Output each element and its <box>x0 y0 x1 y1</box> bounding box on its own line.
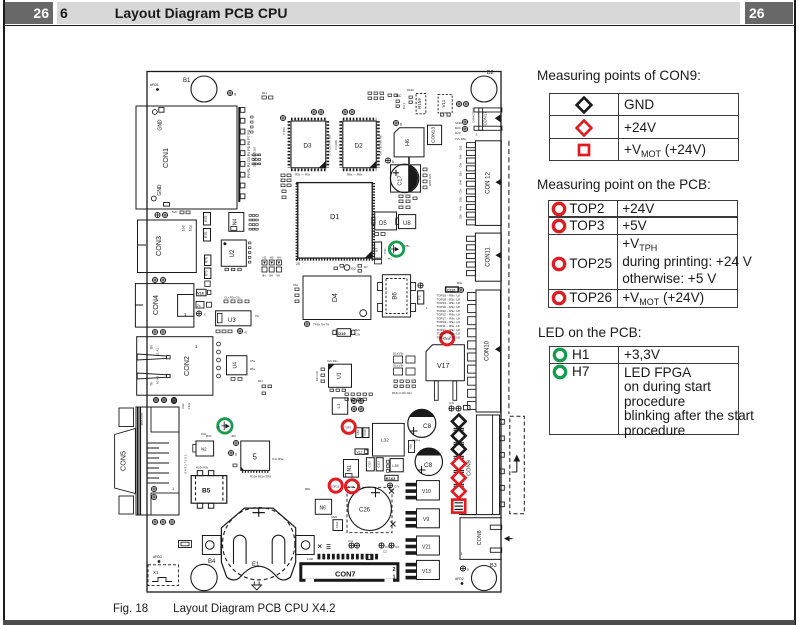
svg-text:D1x V3x: D1x V3x <box>393 352 404 356</box>
svg-text:TP5x Tst T9: TP5x Tst T9 <box>313 323 329 327</box>
svg-text:1: 1 <box>461 551 464 556</box>
svg-text:R10x R11x TP9: R10x R11x TP9 <box>250 475 271 479</box>
svg-text:C114: C114 <box>335 521 339 528</box>
svg-text:V17: V17 <box>437 363 450 370</box>
svg-text:CON7: CON7 <box>335 570 356 579</box>
svg-text:C17: C17 <box>398 175 404 185</box>
svg-text:9 4 8 3 7 2 6 1: 9 4 8 3 7 2 6 1 <box>184 454 188 474</box>
svg-text:R9x — R9x: R9x — R9x <box>295 173 311 177</box>
svg-text:D23: D23 <box>455 131 461 135</box>
svg-text:H5: H5 <box>270 256 274 260</box>
svg-text:1: 1 <box>172 486 175 491</box>
svg-text:9: 9 <box>234 92 237 97</box>
svg-text:H3: H3 <box>263 256 267 260</box>
svg-text:CON11: CON11 <box>486 247 492 267</box>
svg-text:D3x: D3x <box>459 171 463 176</box>
svg-text:CON2: CON2 <box>182 356 191 376</box>
svg-text:V7: V7 <box>375 248 379 252</box>
svg-text:V10: V10 <box>422 489 431 495</box>
svg-text:V12: V12 <box>357 450 363 454</box>
svg-text:CON17: CON17 <box>483 111 488 126</box>
svg-text:JP2: JP2 <box>231 434 236 438</box>
svg-text:9H: 9H <box>276 274 280 278</box>
svg-text:2x: 2x <box>197 304 201 308</box>
svg-text:Gn: Gn <box>150 345 154 350</box>
svg-text:TOP3: TOP3 <box>348 485 355 489</box>
svg-text:R6x: R6x <box>250 367 256 371</box>
svg-text:GND D2x: GND D2x <box>428 173 432 186</box>
svg-text:C7x: C7x <box>394 485 400 489</box>
svg-text:C9x: C9x <box>201 432 207 436</box>
svg-text:2: 2 <box>393 567 396 573</box>
svg-text:R8x: R8x <box>305 487 311 491</box>
svg-text:CON10: CON10 <box>485 340 491 361</box>
svg-text:N1: N1 <box>347 465 353 472</box>
svg-text:T2x R5x: T2x R5x <box>455 137 467 141</box>
svg-text:R159: R159 <box>417 98 422 109</box>
svg-text:H4: H4 <box>277 256 281 260</box>
svg-text:U1: U1 <box>337 372 343 379</box>
svg-text:U3: U3 <box>228 318 236 324</box>
svg-text:B4: B4 <box>208 559 216 565</box>
svg-text:C96: C96 <box>459 214 463 219</box>
svg-text:C80 C81 R85 R87: C80 C81 R85 R87 <box>379 134 383 156</box>
svg-text:N2: N2 <box>201 447 207 452</box>
svg-text:C70 C71 R90 R91: C70 C71 R90 R91 <box>328 134 332 156</box>
svg-text:R76: R76 <box>204 231 208 237</box>
svg-text:R78: R78 <box>205 257 209 263</box>
svg-text:TOP14 – R9x ·L8: TOP14 – R9x ·L8 <box>437 335 461 339</box>
svg-text:R44: R44 <box>459 179 463 184</box>
svg-text:CON9: CON9 <box>467 460 473 476</box>
svg-text:L35: L35 <box>392 464 398 468</box>
svg-text:C4x R9x: C4x R9x <box>272 457 284 461</box>
svg-text:C: C <box>204 313 207 317</box>
svg-text:H6: H6 <box>405 139 411 146</box>
svg-text:1HR: 1HR <box>307 557 314 561</box>
svg-text:47: 47 <box>244 331 248 335</box>
svg-text:C3x: C3x <box>449 401 455 405</box>
svg-text:D1: D1 <box>330 212 339 221</box>
svg-text:8: 8 <box>235 453 237 457</box>
svg-text:C1x: C1x <box>348 539 354 543</box>
svg-text:F1: F1 <box>417 294 422 299</box>
svg-text:D2: D2 <box>355 142 364 149</box>
svg-text:9H: 9H <box>262 274 266 278</box>
svg-text:V9x: V9x <box>409 443 413 448</box>
svg-text:CAPACITIVE: CAPACITIVE <box>472 107 476 122</box>
svg-text:1top: 1top <box>189 225 193 231</box>
svg-text:R160: R160 <box>407 88 414 92</box>
svg-text:R2x C3x: R2x C3x <box>315 370 319 381</box>
svg-text:V13: V13 <box>422 569 431 575</box>
svg-text:R163: R163 <box>386 476 396 481</box>
svg-text:L32: L32 <box>381 438 389 443</box>
svg-text:C8: C8 <box>423 423 432 430</box>
svg-text:R2x: R2x <box>355 328 361 332</box>
svg-text:C7x R8x: C7x R8x <box>334 139 338 150</box>
svg-text:C112: C112 <box>447 288 455 292</box>
svg-text:U8: U8 <box>403 221 411 227</box>
svg-text:C3x: C3x <box>355 333 361 337</box>
svg-text:N6: N6 <box>320 506 327 512</box>
svg-text:1: 1 <box>195 344 198 349</box>
svg-text:C9x: C9x <box>459 162 463 167</box>
svg-text:5: 5 <box>253 453 258 462</box>
svg-text:TOP2: TOP2 <box>344 426 351 430</box>
svg-text:GND: GND <box>158 119 164 131</box>
svg-text:C103: C103 <box>282 127 286 135</box>
svg-text:R75: R75 <box>204 215 208 221</box>
svg-text:K1 A1: K1 A1 <box>156 348 160 356</box>
svg-text:E1: E1 <box>252 562 260 568</box>
svg-text:R4x: R4x <box>459 154 463 159</box>
svg-text:TOP25: TOP25 <box>331 484 340 488</box>
svg-text:B5: B5 <box>202 488 211 495</box>
svg-text:C110: C110 <box>363 429 367 436</box>
svg-text:D3: D3 <box>303 142 312 149</box>
svg-text:C84: C84 <box>356 430 360 435</box>
svg-text:CON8: CON8 <box>477 530 483 545</box>
svg-text:C12x: C12x <box>187 402 191 409</box>
svg-text:R3x: R3x <box>206 434 212 438</box>
svg-text:R4x: R4x <box>459 205 463 210</box>
svg-text:CON3: CON3 <box>154 236 163 256</box>
svg-text:#FD2: #FD2 <box>455 577 464 581</box>
svg-text:V21: V21 <box>422 545 431 551</box>
svg-text:R79: R79 <box>205 270 209 276</box>
svg-text:B2: B2 <box>487 70 494 76</box>
svg-text:V16: V16 <box>197 292 203 296</box>
svg-text:CON4: CON4 <box>151 295 160 315</box>
svg-text:CON 12: CON 12 <box>486 172 492 194</box>
svg-text:CON5: CON5 <box>119 451 128 471</box>
svg-text:C5x: C5x <box>293 283 299 287</box>
svg-text:Tst: Tst <box>255 314 259 318</box>
svg-text:Ye: Ye <box>150 382 154 386</box>
svg-text:D24: D24 <box>455 126 461 130</box>
svg-text:X1: X1 <box>153 570 159 575</box>
svg-text:D36: D36 <box>459 197 463 202</box>
svg-text:NC: NC <box>396 94 402 98</box>
svg-text:C9x: C9x <box>459 188 463 193</box>
svg-text:V11: V11 <box>441 99 446 107</box>
svg-text:A2 K2: A2 K2 <box>156 376 160 385</box>
svg-text:D4: D4 <box>332 293 339 302</box>
svg-text:Tst 1: Tst 1 <box>402 103 406 110</box>
svg-text:GND: GND <box>455 121 463 125</box>
svg-text:B1: B1 <box>183 78 191 84</box>
svg-text:G2: G2 <box>351 267 356 271</box>
svg-text:U4: U4 <box>233 362 239 369</box>
svg-text:9H: 9H <box>269 274 273 278</box>
svg-text:C5x: C5x <box>250 359 256 363</box>
svg-text:1: 1 <box>476 133 478 137</box>
svg-text:C4x: C4x <box>383 248 387 254</box>
svg-text:8: 8 <box>400 123 402 127</box>
svg-text:#FD3: #FD3 <box>153 555 162 559</box>
svg-text:R1x: R1x <box>262 91 268 95</box>
svg-text:GND: GND <box>331 515 337 519</box>
svg-text:B3: B3 <box>490 563 497 569</box>
svg-text:V9: V9 <box>423 517 429 523</box>
svg-text:D5: D5 <box>379 221 387 227</box>
svg-text:CON13: CON13 <box>431 127 437 143</box>
svg-text:GND: GND <box>157 184 163 196</box>
svg-text:C8: C8 <box>424 462 433 469</box>
svg-text:C4: C4 <box>395 545 399 549</box>
svg-text:N4: N4 <box>232 218 238 225</box>
svg-text:R15x C10x D2x: R15x C10x D2x <box>392 391 412 395</box>
svg-text:C115: C115 <box>367 461 371 468</box>
svg-text:R9x: R9x <box>457 281 463 285</box>
svg-text:25: 25 <box>296 262 300 266</box>
svg-text:C26: C26 <box>359 508 371 514</box>
svg-text:8: 8 <box>392 160 394 164</box>
svg-text:1: 1 <box>426 306 428 310</box>
svg-text:C113: C113 <box>377 461 381 468</box>
svg-text:#FD1: #FD1 <box>150 83 159 87</box>
svg-text:Buchse: Buchse <box>140 413 144 426</box>
svg-text:H1: H1 <box>388 257 392 261</box>
svg-text:R10x R9x: R10x R9x <box>196 466 209 470</box>
svg-text:H7: H7 <box>217 426 221 430</box>
svg-text:C2: C2 <box>383 550 387 554</box>
svg-text:R1x: R1x <box>258 379 264 383</box>
svg-text:CON1: CON1 <box>161 148 170 168</box>
svg-text:P9 P1 P2 D3 P4 P5 P6 P7 P: P9 P1 P2 D3 P4 P5 P6 P7 P8 <box>247 130 251 178</box>
svg-text:L1: L1 <box>336 403 341 408</box>
svg-text:C2x R1x: C2x R1x <box>327 359 338 363</box>
svg-text:D35: D35 <box>459 145 463 150</box>
svg-text:1bot: 1bot <box>182 225 186 231</box>
svg-text:9: 9 <box>467 568 469 572</box>
svg-text:R8x — R8x: R8x — R8x <box>347 173 363 177</box>
svg-text:R5x: R5x <box>405 244 411 248</box>
svg-text:B6: B6 <box>393 292 399 300</box>
svg-text:D19: D19 <box>338 331 346 336</box>
svg-text:U2: U2 <box>230 249 236 257</box>
svg-text:5x6: 5x6 <box>172 210 177 214</box>
svg-text:D3x: D3x <box>181 403 185 409</box>
svg-text:D7: D7 <box>364 265 368 269</box>
svg-text:C1x R3x C2x: C1x R3x C2x <box>224 296 241 300</box>
svg-text:D1x V3x: D1x V3x <box>393 364 404 368</box>
